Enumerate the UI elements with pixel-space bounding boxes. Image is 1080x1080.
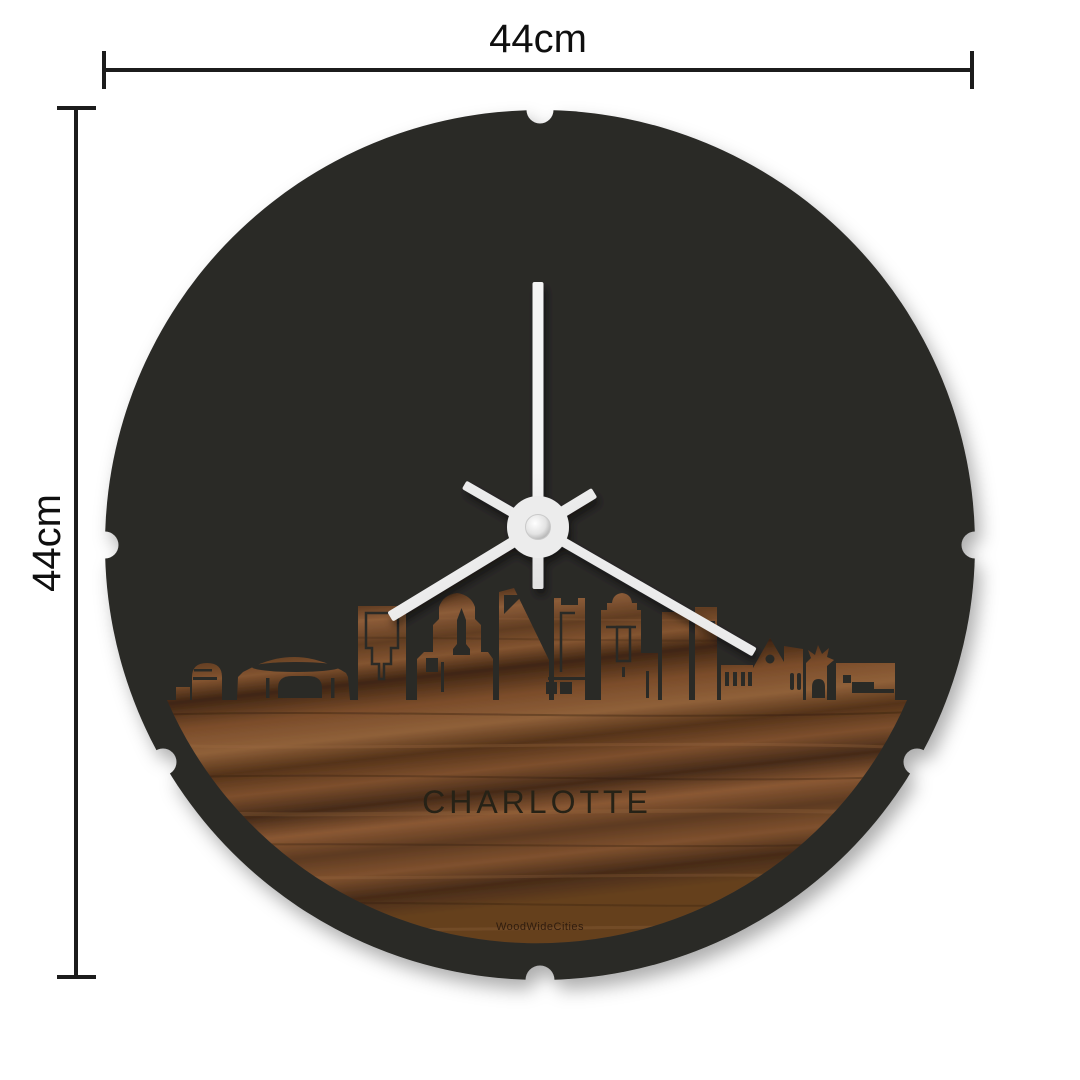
firebird-arch-cut — [812, 679, 825, 698]
right-building-line-cut — [874, 689, 894, 693]
dome-tower-band-cut — [193, 677, 217, 680]
product-image: 44cm 44cm — [0, 0, 1080, 1080]
arcade-window-cut-3 — [741, 672, 745, 686]
base-box-cut-2 — [560, 682, 572, 694]
stadium-band-cut — [252, 662, 340, 672]
width-dimension-label: 44cm — [489, 17, 587, 61]
clock-dimension-diagram: 44cm 44cm — [0, 0, 1080, 1080]
annex-arch-cut-2 — [797, 673, 801, 690]
stadium-arch-cut — [278, 676, 322, 698]
annex-arch-cut-1 — [790, 673, 794, 690]
brand-label: WoodWideCities — [496, 921, 584, 933]
dome-tower-slit-cut — [194, 669, 212, 672]
dome-cap-tower-slit-cut — [622, 667, 625, 677]
stadium-slit-right-cut — [331, 678, 335, 698]
city-name-label: CHARLOTTE — [422, 784, 652, 820]
height-dimension-label: 44cm — [25, 494, 69, 592]
arcade-window-cut-4 — [748, 672, 752, 686]
base-box-cut-1 — [546, 682, 557, 694]
church-rose-window-cut — [766, 655, 775, 664]
arcade-window-cut-1 — [725, 672, 729, 686]
right-building-window-cut — [843, 675, 851, 683]
low-building-slit-cut — [646, 671, 649, 698]
podium-window-cut — [426, 658, 438, 672]
wall-clock: CHARLOTTE WoodWideCities — [105, 110, 975, 980]
hub-pin — [526, 515, 551, 540]
crenellated-tower-baseline-cut — [548, 677, 586, 680]
arcade-window-cut-2 — [733, 672, 737, 686]
podium-slit-cut — [441, 662, 444, 692]
stadium-slit-left-cut — [266, 678, 270, 698]
right-building-door-cut — [852, 682, 874, 693]
